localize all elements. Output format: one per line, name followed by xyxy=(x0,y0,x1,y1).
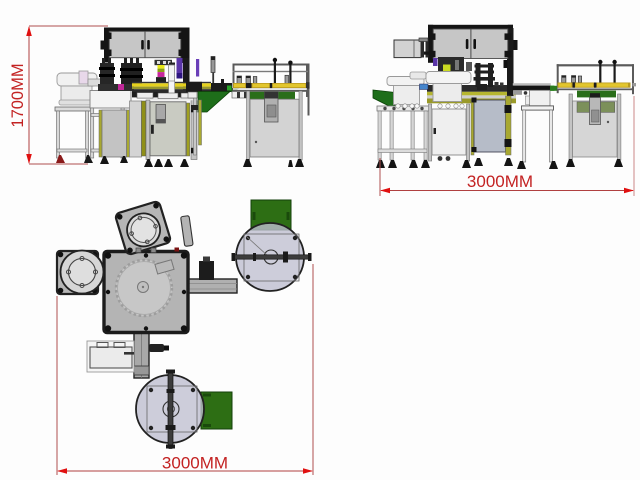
svg-text:3000MM: 3000MM xyxy=(162,454,228,473)
svg-text:1700MM: 1700MM xyxy=(9,63,27,127)
svg-text:3000MM: 3000MM xyxy=(467,172,533,191)
